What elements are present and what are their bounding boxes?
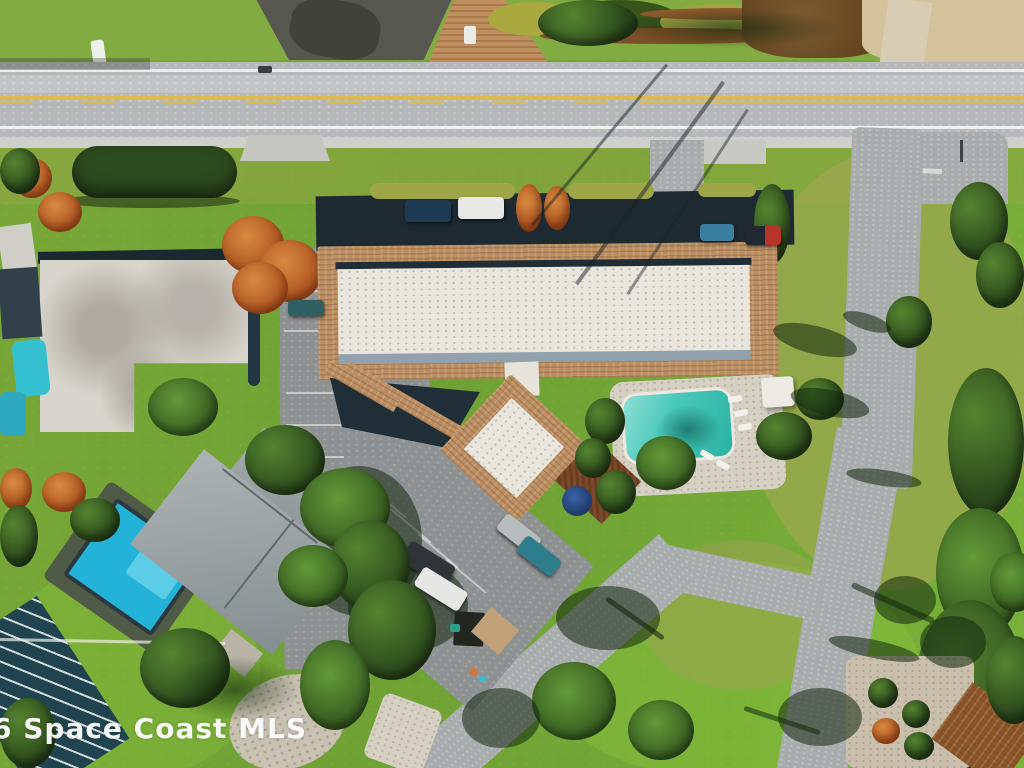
recycle-bin bbox=[450, 624, 460, 632]
orange-shrub bbox=[38, 192, 82, 232]
lawn-palm bbox=[628, 700, 694, 760]
parked-car-blue bbox=[700, 224, 734, 241]
highway-worn-band bbox=[0, 75, 1024, 93]
neighbor-roof bbox=[0, 223, 37, 273]
courtyard-palm bbox=[148, 378, 218, 436]
lawn-shadow bbox=[620, 8, 840, 48]
hedge-row bbox=[698, 183, 756, 197]
tree-canopy bbox=[0, 505, 38, 567]
road-shadow bbox=[0, 58, 150, 70]
neighbor-pool bbox=[11, 338, 51, 397]
hedge-row bbox=[72, 146, 237, 198]
driveway-apron bbox=[240, 135, 330, 161]
orange-shrub bbox=[0, 468, 32, 510]
patio-umbrella bbox=[562, 486, 592, 516]
tree-canopy bbox=[756, 412, 812, 460]
center-line-yellow bbox=[0, 96, 1024, 99]
parked-van-navy bbox=[405, 200, 451, 222]
tree-canopy bbox=[948, 368, 1024, 516]
distant-car bbox=[258, 66, 272, 73]
cypress-tree bbox=[886, 296, 932, 348]
object-orange bbox=[470, 668, 478, 676]
main-building bbox=[317, 242, 778, 381]
neighbor-roof-dark bbox=[0, 267, 42, 340]
white-flat-roof bbox=[338, 265, 751, 358]
shrub bbox=[868, 678, 898, 708]
palm-shadow bbox=[462, 688, 540, 748]
poolside-palm bbox=[636, 436, 696, 490]
palm-cluster bbox=[278, 545, 348, 607]
edge-line bbox=[0, 69, 1024, 72]
center-line-yellow bbox=[640, 101, 1024, 104]
object-teal bbox=[478, 676, 487, 682]
autumn-tree bbox=[232, 262, 288, 314]
aerial-photo: 6 Space Coast MLS bbox=[0, 0, 1024, 768]
palm-shadow bbox=[920, 616, 986, 668]
watermark-text: 6 Space Coast MLS bbox=[0, 712, 307, 745]
hedge-shadow bbox=[60, 194, 240, 208]
sand-path bbox=[880, 0, 933, 69]
utility-box bbox=[464, 26, 476, 44]
parked-car-teal bbox=[288, 300, 324, 316]
sign-pole bbox=[960, 140, 963, 162]
bush bbox=[70, 498, 120, 542]
center-line-dashed bbox=[0, 101, 640, 104]
palm-shadow bbox=[556, 586, 660, 650]
palm-cluster bbox=[300, 640, 370, 730]
parked-van-white bbox=[458, 197, 504, 219]
shrub bbox=[904, 732, 934, 760]
tree-canopy bbox=[976, 242, 1024, 308]
bush bbox=[596, 470, 636, 514]
dry-palm bbox=[516, 184, 542, 232]
parked-truck-red bbox=[745, 226, 781, 245]
lawn-palm bbox=[532, 662, 616, 740]
shrub bbox=[872, 718, 900, 744]
neighbor-pool bbox=[0, 392, 26, 436]
pool-cabana bbox=[761, 376, 795, 408]
shrub bbox=[902, 700, 930, 728]
palm-shadow bbox=[778, 688, 862, 746]
tree-canopy bbox=[0, 148, 40, 194]
